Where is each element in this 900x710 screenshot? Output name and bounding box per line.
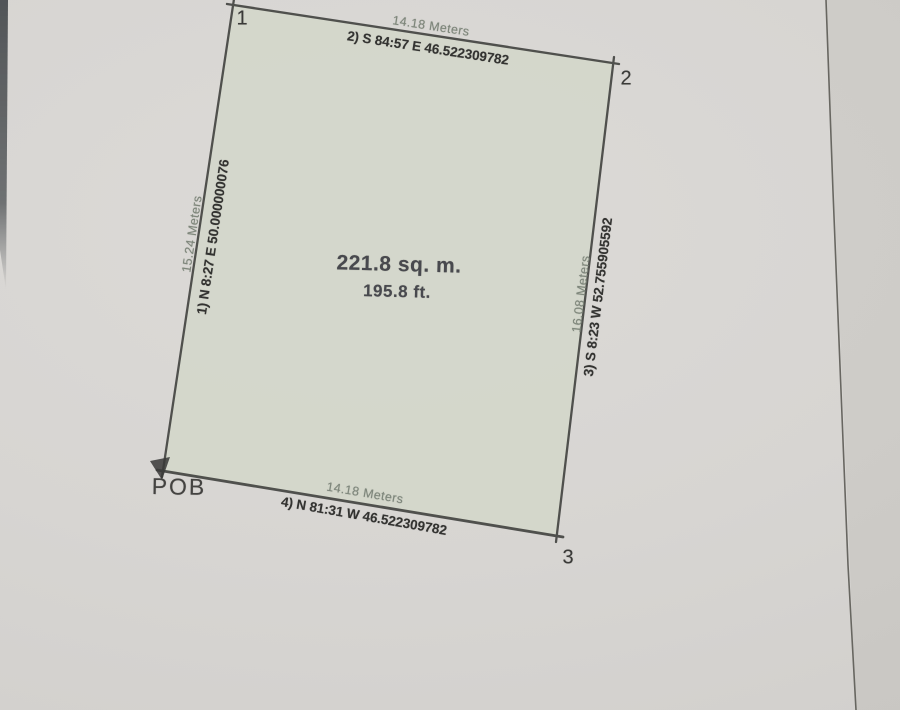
corner-label-2: 2 xyxy=(620,68,631,91)
photo-layer: 1 2 3 POB 14.18 Meters 2) S 84:57 E 46.5… xyxy=(0,0,900,710)
pob-label: POB xyxy=(151,473,206,501)
corner-label-1: 1 xyxy=(236,8,247,31)
area-label-ft: 195.8 ft. xyxy=(363,281,431,303)
page-margin-shade xyxy=(826,0,900,710)
photo-edge-band xyxy=(0,0,8,290)
survey-plan-drawing xyxy=(0,0,900,710)
scanned-survey-page: 1 2 3 POB 14.18 Meters 2) S 84:57 E 46.5… xyxy=(0,0,900,710)
corner-label-3: 3 xyxy=(562,547,573,570)
area-label-sqm: 221.8 sq. m. xyxy=(336,251,462,278)
